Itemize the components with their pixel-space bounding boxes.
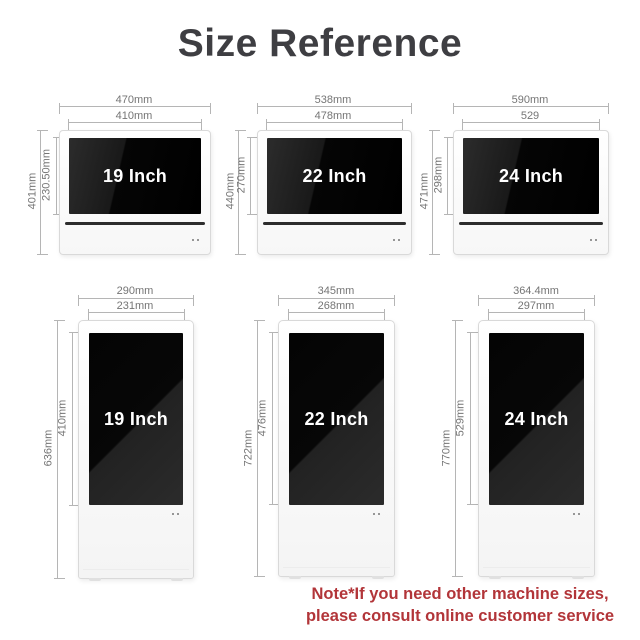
indicator-dots bbox=[573, 513, 580, 515]
kiosk-portrait-19inch: 19 Inch bbox=[78, 320, 194, 579]
kiosk-screen: 24 Inch bbox=[489, 333, 584, 505]
indicator-dots bbox=[393, 239, 400, 241]
base-seam bbox=[283, 567, 390, 568]
kiosk-foot bbox=[289, 576, 301, 579]
kiosk-screen: 19 Inch bbox=[89, 333, 183, 505]
kiosk-foot bbox=[372, 576, 384, 579]
dim-label-screen-height: 298mm bbox=[434, 157, 445, 194]
page-title: Size Reference bbox=[0, 22, 640, 66]
kiosk-foot bbox=[89, 578, 101, 581]
dim-line-screen-width bbox=[288, 309, 385, 320]
screen-size-label: 24 Inch bbox=[499, 166, 563, 187]
dim-label-screen-height: 270mm bbox=[237, 157, 248, 194]
indicator-dots bbox=[373, 513, 380, 515]
monitor-landscape-19inch: 19 Inch bbox=[59, 130, 211, 255]
dim-line-screen-width bbox=[462, 119, 600, 130]
dim-label-outer-height: 636mm bbox=[44, 430, 55, 467]
speaker-stripe bbox=[459, 222, 603, 225]
dim-label-screen-height: 410mm bbox=[58, 400, 69, 437]
indicator-dots bbox=[590, 239, 597, 241]
indicator-dots bbox=[192, 239, 199, 241]
screen-size-label: 22 Inch bbox=[302, 166, 366, 187]
note-text: Note*If you need other machine sizes, pl… bbox=[290, 584, 630, 628]
kiosk-foot bbox=[171, 578, 183, 581]
dim-label-screen-height: 476mm bbox=[258, 400, 269, 437]
kiosk-foot bbox=[572, 576, 584, 579]
dim-line-outer-height bbox=[452, 320, 463, 577]
monitor-landscape-24inch: 24 Inch bbox=[453, 130, 609, 255]
kiosk-screen: 22 Inch bbox=[289, 333, 384, 505]
base-seam bbox=[83, 569, 189, 570]
monitor-landscape-22inch: 22 Inch bbox=[257, 130, 412, 255]
screen-size-label: 22 Inch bbox=[304, 409, 368, 430]
speaker-stripe bbox=[263, 222, 406, 225]
monitor-screen: 22 Inch bbox=[267, 138, 402, 214]
dim-line-screen-width bbox=[488, 309, 585, 320]
dim-line-screen-width bbox=[68, 119, 202, 130]
dim-line-screen-height bbox=[467, 332, 478, 505]
dim-label-outer-height: 770mm bbox=[442, 430, 453, 467]
monitor-screen: 24 Inch bbox=[463, 138, 599, 214]
dim-label-outer-height: 722mm bbox=[244, 430, 255, 467]
kiosk-portrait-24inch: 24 Inch bbox=[478, 320, 595, 577]
screen-size-label: 19 Inch bbox=[104, 409, 168, 430]
dim-line-screen-width bbox=[266, 119, 403, 130]
speaker-stripe bbox=[65, 222, 205, 225]
dim-line-outer-height bbox=[254, 320, 265, 577]
note-line-1: Note*If you need other machine sizes, bbox=[290, 584, 630, 606]
screen-size-label: 24 Inch bbox=[504, 409, 568, 430]
base-seam bbox=[483, 567, 590, 568]
dim-label-screen-height: 230.50mm bbox=[42, 149, 53, 201]
indicator-dots bbox=[172, 513, 179, 515]
note-line-2: please consult online customer service bbox=[290, 606, 630, 628]
size-reference-infographic: Size Reference 470mm 410mm 401mm 230.50m… bbox=[0, 0, 640, 640]
dim-line-outer-height bbox=[54, 320, 65, 579]
monitor-screen: 19 Inch bbox=[69, 138, 201, 214]
kiosk-portrait-22inch: 22 Inch bbox=[278, 320, 395, 577]
kiosk-foot bbox=[489, 576, 501, 579]
dim-label-screen-height: 529mm bbox=[456, 400, 467, 437]
dim-line-screen-width bbox=[88, 309, 185, 320]
screen-size-label: 19 Inch bbox=[103, 166, 167, 187]
